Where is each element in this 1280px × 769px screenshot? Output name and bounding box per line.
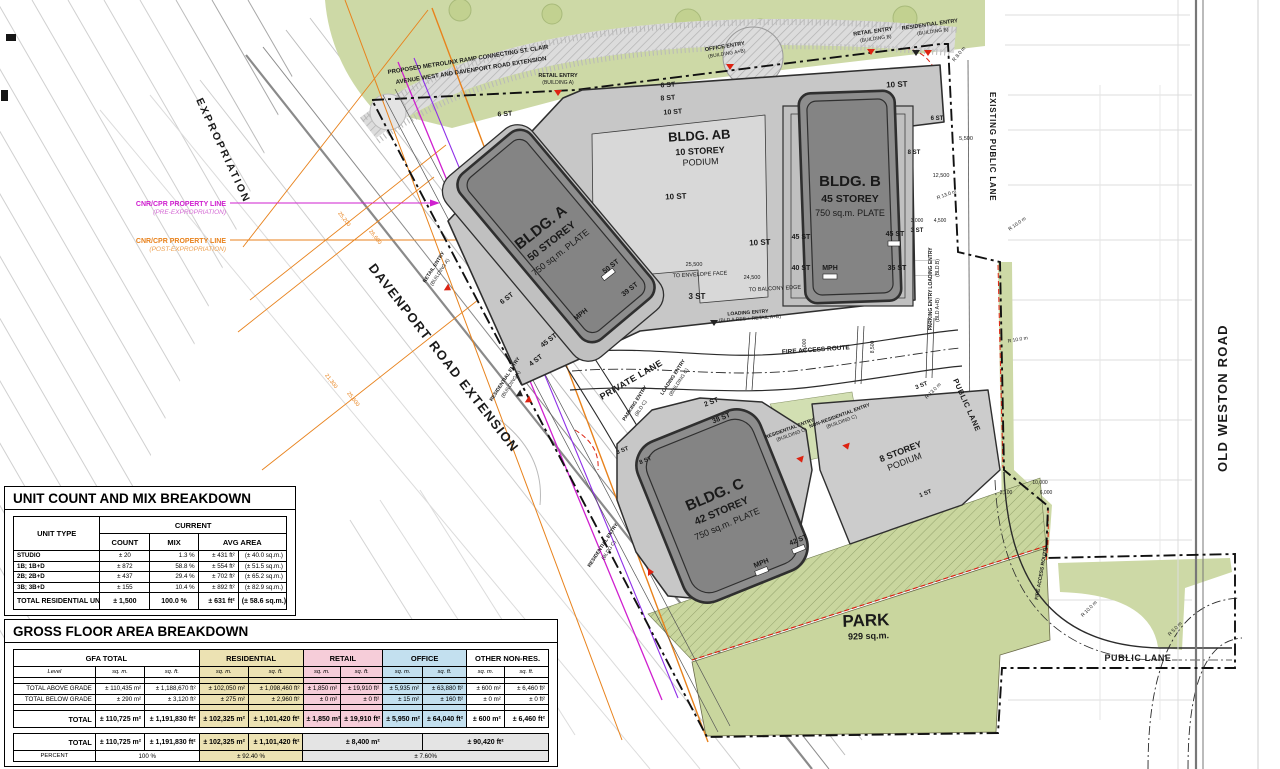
bldg-b-storeys: 45 STOREY <box>821 193 879 205</box>
table-total-row: TOTAL ± 110,725 m² ± 1,191,830 ft² ± 102… <box>14 734 549 751</box>
storey-label: 45 ST <box>886 231 905 238</box>
dimension-label: 5,500 <box>959 136 973 142</box>
group-other: OTHER NON-RES. <box>467 650 549 667</box>
storey-label: 40 ST <box>792 265 811 272</box>
cnr-pre-label-2: (PRE-EXPROPRIATION) <box>153 209 226 216</box>
col-avg-area: AVG AREA <box>198 534 286 551</box>
gfa-table-panel: GROSS FLOOR AREA BREAKDOWN GFA TOTAL RES… <box>4 619 558 767</box>
dimension-label: 21,300 <box>323 373 338 390</box>
corner-markers <box>1 34 16 101</box>
site-plan-page: BLDG. A 50 STOREY 750 sq.m. PLATE BLDG. … <box>0 0 1280 769</box>
bldg-ab-podium: PODIUM <box>682 156 718 168</box>
dimension-label: 25,600 <box>345 391 360 408</box>
existing-public-lane-label: EXISTING PUBLIC LANE <box>988 92 997 201</box>
bldg-b-plate: 750 sq.m. PLATE <box>815 208 885 218</box>
storey-label: 8 ST <box>660 94 676 102</box>
table-row: 3B; 3B+D ± 155 10.4 % ± 892 ft² (± 82.9 … <box>14 582 287 593</box>
expropriation-label: EXPROPRIATION <box>193 96 252 205</box>
storey-label: 10 ST <box>749 237 771 247</box>
unit-count-table: UNIT TYPE CURRENT COUNT MIX AVG AREA STU… <box>13 516 287 610</box>
storey-label: 3 ST <box>911 228 924 234</box>
entry-label: (BUILDING A) <box>542 80 574 86</box>
unit-table-title: UNIT COUNT AND MIX BREAKDOWN <box>5 487 295 510</box>
storey-label: 10 ST <box>665 191 687 201</box>
old-weston-road-label: OLD WESTON ROAD <box>1215 324 1230 472</box>
bldg-b-name: BLDG. B <box>819 173 881 190</box>
gfa-table-title: GROSS FLOOR AREA BREAKDOWN <box>5 620 557 643</box>
dimension-label: 25,500 <box>686 262 703 268</box>
table-row: 1B; 1B+D ± 872 58.8 % ± 554 ft² (± 51.5 … <box>14 561 287 572</box>
entry-label: LOADING ENTRY <box>928 247 934 289</box>
cnr-pre-label-1: CNR/CPR PROPERTY LINE <box>136 201 226 208</box>
dimension-label: 10,000 <box>1032 480 1048 486</box>
group-retail: RETAIL <box>303 650 383 667</box>
table-percent-row: PERCENT 100 % ± 92.40 % ± 7.60% <box>14 751 549 762</box>
radius-label: R 10.0 m <box>1007 216 1027 233</box>
dimension-label: 26,600 <box>367 229 382 246</box>
storey-label: 45 ST <box>792 234 811 241</box>
table-total-row: TOTAL RESIDENTIAL UNITS ± 1,500 100.0 % … <box>14 593 287 610</box>
dimension-label: 24,500 <box>744 275 761 281</box>
radius-label: R 10.0 m <box>1080 600 1099 619</box>
group-residential: RESIDENTIAL <box>199 650 303 667</box>
storey-label: 35 ST <box>888 265 907 272</box>
dimension-label: 12,500 <box>933 173 950 179</box>
storey-label: 8 ST <box>908 150 921 156</box>
storey-label: 6 ST <box>497 110 513 118</box>
entry-label: (BLD.B) <box>935 259 941 277</box>
storey-label: 3 ST <box>689 292 706 301</box>
dimension-label: 3,000 <box>911 218 924 224</box>
entry-label: RETAIL ENTRY <box>538 73 578 79</box>
cnr-post-label-2: (POST-EXPROPRIATION) <box>149 246 226 253</box>
col-mix: MIX <box>150 534 198 551</box>
storey-label: 6 ST <box>931 116 944 122</box>
dimension-label: 2,100 <box>1000 490 1013 496</box>
col-current: CURRENT <box>100 517 287 534</box>
dimension-label: 6,000 <box>1040 490 1053 496</box>
dimension-label: 4,500 <box>934 218 947 224</box>
fire-access-route-label: FIRE ACCESS ROUTE <box>782 344 851 356</box>
group-gfa-total: GFA TOTAL <box>14 650 200 667</box>
group-office: OFFICE <box>383 650 467 667</box>
dimension-label: 8,500 <box>870 341 876 354</box>
storey-label: 10 ST <box>663 108 683 116</box>
table-row: TOTAL BELOW GRADE ± 290 m² ± 3,120 ft² ±… <box>14 694 549 705</box>
park-area: 929 sq.m. <box>848 630 889 641</box>
gfa-table: GFA TOTAL RESIDENTIAL RETAIL OFFICE OTHE… <box>13 649 549 728</box>
storey-label: 10 ST <box>886 79 908 89</box>
table-total-row: TOTAL ± 110,725 m² ± 1,191,830 ft² ± 102… <box>14 711 549 728</box>
table-row: TOTAL ABOVE GRADE ± 110,435 m² ± 1,188,6… <box>14 684 549 695</box>
public-lane-bottom-label: PUBLIC LANE <box>1104 653 1171 663</box>
cnr-post-label-1: CNR/CPR PROPERTY LINE <box>136 238 226 245</box>
park-title: PARK <box>842 610 890 631</box>
col-count: COUNT <box>100 534 150 551</box>
unit-count-table-panel: UNIT COUNT AND MIX BREAKDOWN UNIT TYPE C… <box>4 486 296 616</box>
table-row: 2B; 2B+D ± 437 29.4 % ± 702 ft² (± 65.2 … <box>14 572 287 583</box>
radius-label: R 13.0 m <box>936 189 957 202</box>
entry-label: PARKING ENTRY <box>928 289 934 331</box>
storey-label: 6 ST <box>660 81 676 89</box>
storey-label: MPH <box>822 265 838 272</box>
table-row: STUDIO ± 20 1.3 % ± 431 ft² (± 40.0 sq.m… <box>14 551 287 562</box>
gfa-summary-table: TOTAL ± 110,725 m² ± 1,191,830 ft² ± 102… <box>13 733 549 762</box>
col-unit-type: UNIT TYPE <box>14 517 100 551</box>
storey-label: 3 ST <box>915 381 929 391</box>
southeast-green <box>1058 558 1232 650</box>
entry-label: (BLD A+B) <box>935 298 941 322</box>
